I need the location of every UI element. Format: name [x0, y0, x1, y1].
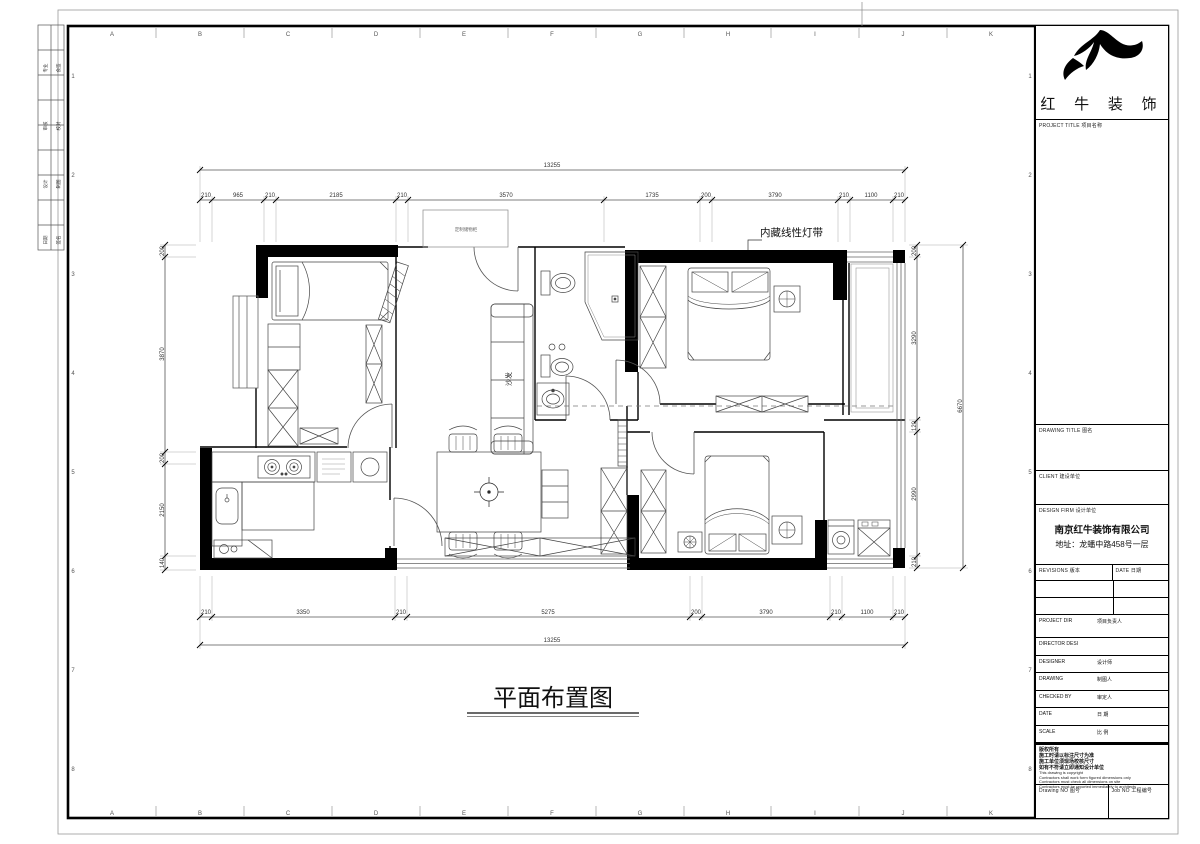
- svg-text:审核: 审核: [42, 121, 49, 130]
- sideboard-x: [445, 538, 635, 556]
- svg-text:2: 2: [1028, 173, 1032, 179]
- svg-text:C: C: [286, 811, 291, 817]
- svg-text:2185: 2185: [329, 193, 343, 199]
- row-scale: SCALE比 例: [1036, 726, 1168, 744]
- bed-double-second: [705, 456, 769, 554]
- svg-text:3790: 3790: [768, 193, 782, 199]
- signature-stamp-table: [38, 25, 64, 250]
- row-drawing: DRAWING制图人: [1036, 673, 1168, 691]
- svg-text:G: G: [638, 811, 643, 817]
- svg-text:J: J: [902, 811, 905, 817]
- row-director: DIRECTOR DESI: [1036, 638, 1168, 656]
- bed-single: [272, 262, 388, 320]
- svg-text:6: 6: [71, 569, 75, 575]
- drawing-no-label: Drawing NO 图号: [1036, 785, 1109, 818]
- kitchen-counter: [212, 452, 387, 558]
- title-block: 红 牛 装 饰 PROJECT TITLE 项目名称 DRAWING TITLE…: [1036, 26, 1168, 818]
- svg-text:13255: 13255: [544, 638, 561, 644]
- svg-text:D: D: [374, 811, 379, 817]
- svg-text:2990: 2990: [912, 487, 918, 501]
- drawing-number-row: Drawing NO 图号 Job NO 工程编号: [1036, 785, 1168, 818]
- svg-text:210: 210: [265, 193, 276, 199]
- job-no-label: Job NO 工程编号: [1109, 785, 1153, 818]
- svg-text:3870: 3870: [160, 347, 166, 361]
- svg-text:K: K: [989, 32, 993, 38]
- svg-text:5: 5: [71, 470, 75, 476]
- svg-text:210: 210: [396, 610, 407, 616]
- svg-text:3: 3: [1028, 272, 1032, 278]
- light-strip-annotation: 内藏线性灯带: [748, 226, 823, 250]
- svg-text:140: 140: [160, 557, 166, 568]
- svg-text:E: E: [462, 811, 466, 817]
- svg-text:1735: 1735: [645, 193, 659, 199]
- svg-text:平面布置图: 平面布置图: [493, 684, 613, 712]
- svg-text:H: H: [726, 32, 730, 38]
- svg-text:965: 965: [233, 193, 244, 199]
- revisions-label: REVISIONS 版本: [1036, 565, 1113, 580]
- utility-cabinet-x: [858, 520, 890, 556]
- svg-text:A: A: [110, 32, 114, 38]
- svg-text:210: 210: [201, 610, 212, 616]
- svg-text:3570: 3570: [499, 193, 513, 199]
- svg-text:8: 8: [1028, 767, 1032, 773]
- drawing-title: 平面布置图: [467, 684, 639, 717]
- drawing-title-label: DRAWING TITLE 图名: [1036, 425, 1168, 434]
- svg-text:4: 4: [1028, 371, 1032, 377]
- firm-address: 地址：龙蟠中路458号一层: [1036, 539, 1168, 550]
- svg-text:8: 8: [71, 767, 75, 773]
- company-logo-text: 红 牛 装 饰: [1036, 93, 1168, 114]
- row-checked-by: CHECKED BY审定人: [1036, 691, 1168, 709]
- svg-text:200: 200: [160, 452, 166, 463]
- svg-text:200: 200: [691, 610, 702, 616]
- svg-text:1: 1: [71, 74, 75, 80]
- svg-text:3: 3: [71, 272, 75, 278]
- grid-letters-top: A B C D E F G H I J K: [110, 28, 993, 38]
- dimension-chain-right: 200 3290 120 2990 210: [909, 242, 921, 571]
- balcony-frames: [851, 264, 893, 412]
- revisions-date-label: DATE 日期: [1113, 565, 1168, 580]
- rednew-bull-logo-icon: [1036, 26, 1168, 86]
- bed-double-master: [688, 268, 770, 360]
- svg-text:3790: 3790: [759, 610, 773, 616]
- walls-structural: [200, 245, 905, 570]
- svg-text:A: A: [110, 811, 114, 817]
- drawing-sheet: 专业 会签 审核 校对 设计 制图 日期 签名 A B C D E F G H …: [0, 0, 1200, 844]
- svg-text:210: 210: [201, 193, 212, 199]
- svg-text:210: 210: [397, 193, 408, 199]
- svg-text:B: B: [198, 811, 202, 817]
- svg-text:200: 200: [160, 245, 166, 256]
- svg-text:4: 4: [71, 371, 75, 377]
- sheet-frame: [58, 2, 1178, 834]
- svg-text:F: F: [550, 32, 554, 38]
- svg-text:210: 210: [831, 610, 842, 616]
- logo-area: 红 牛 装 饰: [1036, 26, 1168, 120]
- svg-text:3350: 3350: [296, 610, 310, 616]
- floor-plan-drawing: 专业 会签 审核 校对 设计 制图 日期 签名 A B C D E F G H …: [0, 0, 1200, 844]
- dimension-chain-bottom: 210 3350 210 5275 200 3790 210 1100 210: [197, 576, 908, 621]
- svg-text:5275: 5275: [541, 610, 555, 616]
- svg-text:13255: 13255: [544, 163, 561, 169]
- entry-mirror-cabinet: [378, 262, 408, 323]
- row-project-dir: PROJECT DIR项目负责人: [1036, 615, 1168, 638]
- svg-text:7: 7: [1028, 668, 1032, 674]
- svg-text:会签: 会签: [55, 63, 62, 72]
- revisions-empty-rows: [1036, 581, 1168, 615]
- svg-text:120: 120: [912, 420, 918, 431]
- firm-name: 南京红牛装饰有限公司: [1036, 522, 1168, 536]
- svg-text:F: F: [550, 811, 554, 817]
- wardrobe-master-x: [640, 266, 666, 368]
- svg-text:K: K: [989, 811, 993, 817]
- svg-text:210: 210: [839, 193, 850, 199]
- grid-numbers: 1 2 3 4 5 6 7 8 1 2 3 4 5 6 7 8: [71, 74, 1032, 773]
- svg-text:6670: 6670: [958, 399, 964, 413]
- dimension-overall-bottom: 13255: [197, 621, 908, 649]
- svg-text:2150: 2150: [160, 503, 166, 517]
- nightstand-master: [774, 286, 800, 312]
- svg-text:G: G: [638, 32, 643, 38]
- desk: [268, 324, 300, 370]
- wardrobe-x: [268, 325, 382, 446]
- svg-text:200: 200: [701, 193, 712, 199]
- client-label: CLIENT 建设单位: [1036, 471, 1168, 480]
- svg-text:I: I: [814, 811, 816, 817]
- dimension-overall-right: 6670: [921, 242, 968, 571]
- dimension-overall-top: 13255: [197, 163, 908, 196]
- project-title-label: PROJECT TITLE 项目名称: [1036, 120, 1168, 129]
- copyright-notes: 版权所有 施工时请以标注尺寸为准 施工单位须现场校核尺寸 如有不符请立即通知设计…: [1036, 743, 1168, 785]
- svg-text:签名: 签名: [55, 236, 62, 245]
- bathroom-fixtures: [537, 252, 638, 415]
- grid-letters-bottom: A B C D E F G H I J K: [110, 806, 993, 817]
- design-firm-label: DESIGN FIRM 设计单位: [1036, 505, 1168, 514]
- svg-text:210: 210: [912, 556, 918, 567]
- svg-text:I: I: [814, 32, 816, 38]
- svg-text:6: 6: [1028, 569, 1032, 575]
- row-designer: DESIGNER设计师: [1036, 656, 1168, 674]
- svg-text:校对: 校对: [55, 121, 62, 130]
- walls-partition: [200, 247, 905, 558]
- entry-cabinet-label: 定制储物柜: [455, 226, 478, 233]
- sofa-label: 沙发: [504, 372, 513, 386]
- stamp-labels: 专业 会签 审核 校对 设计 制图 日期 签名: [42, 63, 62, 244]
- svg-text:制图: 制图: [55, 179, 62, 188]
- svg-text:210: 210: [894, 193, 905, 199]
- svg-text:E: E: [462, 32, 466, 38]
- svg-text:3290: 3290: [912, 331, 918, 345]
- hall-cabinets: [601, 420, 627, 554]
- svg-text:1100: 1100: [865, 193, 879, 199]
- svg-text:2: 2: [71, 173, 75, 179]
- svg-text:B: B: [198, 32, 202, 38]
- svg-text:210: 210: [894, 610, 905, 616]
- nightstand-second: [772, 516, 802, 544]
- svg-text:5: 5: [1028, 470, 1032, 476]
- svg-text:1: 1: [1028, 74, 1032, 80]
- svg-text:1100: 1100: [861, 610, 875, 616]
- wardrobe-second-x: [641, 470, 666, 553]
- row-date: DATE日 期: [1036, 708, 1168, 726]
- svg-text:200: 200: [912, 245, 918, 256]
- svg-text:C: C: [286, 32, 291, 38]
- dimension-chain-left: 200 3870 200 2150 140: [160, 242, 196, 573]
- tv-cabinet-x: [716, 396, 808, 412]
- svg-text:H: H: [726, 811, 730, 817]
- svg-text:设计: 设计: [42, 179, 49, 188]
- svg-text:7: 7: [71, 668, 75, 674]
- svg-text:专业: 专业: [42, 63, 49, 72]
- washing-machine: [828, 520, 854, 554]
- svg-text:D: D: [374, 32, 379, 38]
- svg-text:日期: 日期: [43, 235, 49, 244]
- svg-text:内藏线性灯带: 内藏线性灯带: [760, 226, 823, 239]
- stool: [678, 532, 702, 552]
- svg-text:J: J: [902, 32, 905, 38]
